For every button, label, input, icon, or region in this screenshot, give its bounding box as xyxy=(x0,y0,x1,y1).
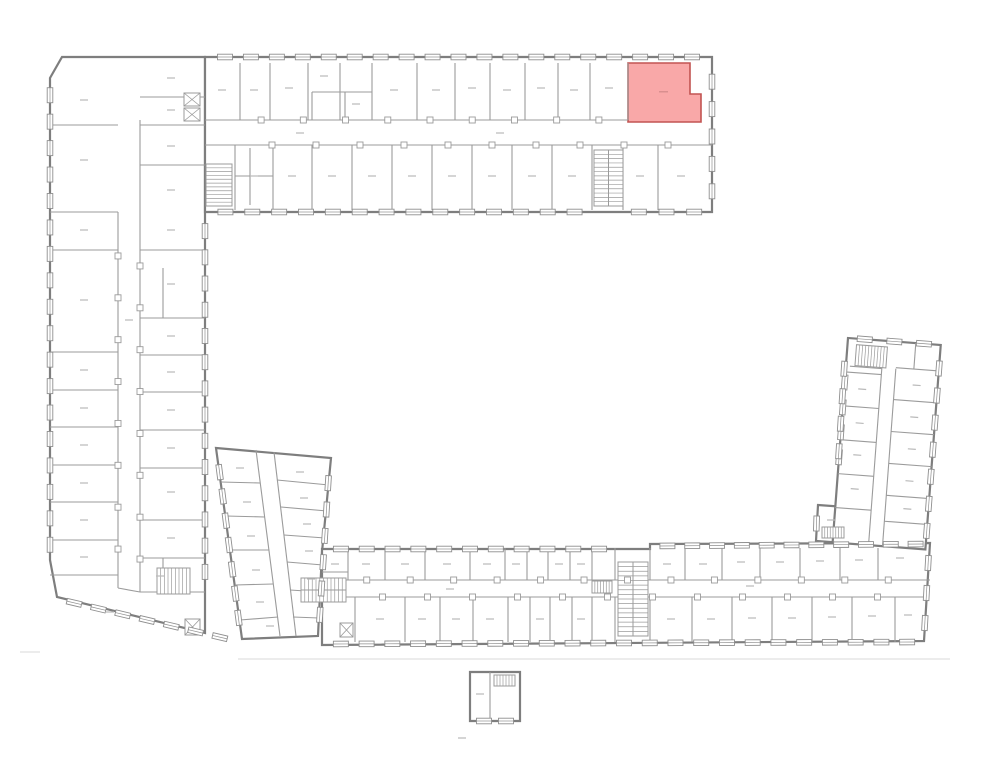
window-tick xyxy=(660,543,675,549)
window-tick xyxy=(710,543,725,549)
room-label-dash xyxy=(828,616,836,617)
window-tick xyxy=(631,209,646,215)
door-symbol xyxy=(115,462,121,468)
window-tick xyxy=(540,209,555,215)
room-label-dash xyxy=(528,175,536,176)
door-symbol xyxy=(830,594,836,600)
window-tick xyxy=(874,639,889,645)
room-label-dash xyxy=(503,89,511,90)
room-label-dash xyxy=(106,611,114,612)
door-symbol xyxy=(711,577,717,583)
window-tick xyxy=(565,640,580,646)
window-tick xyxy=(923,523,930,538)
room-label-dash xyxy=(250,89,258,90)
window-tick xyxy=(269,54,284,60)
window-tick xyxy=(592,546,607,552)
window-tick xyxy=(709,129,715,144)
room-label-dash xyxy=(331,563,339,564)
room-label-dash xyxy=(167,537,175,538)
window-tick xyxy=(936,361,943,376)
window-tick xyxy=(320,555,327,570)
door-symbol xyxy=(445,142,451,148)
window-tick xyxy=(385,641,400,647)
room-label-dash xyxy=(748,617,756,618)
window-tick xyxy=(837,416,844,431)
window-tick xyxy=(202,433,208,448)
room-label-dash xyxy=(636,175,644,176)
door-symbol xyxy=(115,546,121,552)
window-tick xyxy=(47,141,53,156)
room-label-dash xyxy=(80,159,88,160)
door-symbol xyxy=(137,472,143,478)
door-symbol xyxy=(137,556,143,562)
room-label-dash xyxy=(458,737,466,738)
window-tick xyxy=(321,54,336,60)
window-tick xyxy=(836,444,843,459)
door-symbol xyxy=(605,594,611,600)
door-symbol xyxy=(451,577,457,583)
room-label-dash xyxy=(376,618,384,619)
room-label-dash xyxy=(896,557,904,558)
window-tick xyxy=(822,639,837,645)
room-label-dash xyxy=(80,482,88,483)
room-label-dash xyxy=(452,618,460,619)
room-label-dash xyxy=(80,99,88,100)
window-tick xyxy=(685,543,700,549)
window-tick xyxy=(488,641,503,647)
window-tick xyxy=(784,542,799,548)
window-tick xyxy=(540,546,555,552)
window-tick xyxy=(841,361,848,376)
door-symbol xyxy=(427,117,433,123)
door-symbol xyxy=(650,594,656,600)
property-line xyxy=(20,652,950,659)
room-label-dash xyxy=(80,229,88,230)
room-label-dash xyxy=(432,89,440,90)
door-symbol xyxy=(343,117,349,123)
window-tick xyxy=(529,54,544,60)
door-symbol xyxy=(554,117,560,123)
room-label-dash xyxy=(167,229,175,230)
room-label-dash xyxy=(266,625,274,626)
window-tick xyxy=(685,54,700,60)
room-label-dash xyxy=(285,87,293,88)
window-tick xyxy=(642,640,657,646)
room-label-dash xyxy=(788,617,796,618)
door-symbol xyxy=(515,594,521,600)
door-symbol xyxy=(785,594,791,600)
door-symbol xyxy=(364,577,370,583)
window-tick xyxy=(406,209,421,215)
window-tick xyxy=(245,209,260,215)
room-label-dash xyxy=(555,563,563,564)
window-tick xyxy=(202,407,208,422)
room-label-dash xyxy=(570,89,578,90)
door-symbol xyxy=(115,379,121,385)
door-symbol xyxy=(137,514,143,520)
window-tick xyxy=(566,546,581,552)
door-symbol xyxy=(313,142,319,148)
window-tick xyxy=(514,641,529,647)
door-symbol xyxy=(137,430,143,436)
room-label-dash xyxy=(512,563,520,564)
highlighted-unit-label xyxy=(659,91,668,93)
door-symbol xyxy=(425,594,431,600)
stair-outline xyxy=(157,568,190,594)
room-label-dash xyxy=(167,109,175,110)
window-tick xyxy=(47,379,53,394)
window-tick xyxy=(694,640,709,646)
room-label-dash xyxy=(446,588,454,589)
room-label-dash xyxy=(125,319,133,320)
room-label-dash xyxy=(156,575,164,576)
room-label-dash xyxy=(568,175,576,176)
room-label-dash xyxy=(218,89,226,90)
window-tick xyxy=(436,641,451,647)
window-tick xyxy=(487,209,502,215)
window-tick xyxy=(745,640,760,646)
room-label-dash xyxy=(80,556,88,557)
window-tick xyxy=(322,528,329,543)
window-tick xyxy=(437,546,452,552)
window-tick xyxy=(202,564,208,579)
room-label-dash xyxy=(776,561,784,562)
window-tick xyxy=(848,639,863,645)
window-tick xyxy=(47,458,53,473)
window-tick xyxy=(318,581,325,596)
window-tick xyxy=(834,542,849,548)
room-label-dash xyxy=(328,175,336,176)
room-label-dash xyxy=(167,371,175,372)
door-symbol xyxy=(137,347,143,353)
room-label-dash xyxy=(288,175,296,176)
room-label-dash xyxy=(252,569,260,570)
room-label-dash xyxy=(303,523,311,524)
window-tick xyxy=(841,375,848,390)
window-tick xyxy=(932,415,939,430)
window-tick xyxy=(411,641,426,647)
door-symbol xyxy=(494,577,500,583)
room-label-dash xyxy=(80,444,88,445)
window-tick xyxy=(202,538,208,553)
window-tick xyxy=(451,54,466,60)
door-symbol xyxy=(137,305,143,311)
room-label-dash xyxy=(401,563,409,564)
window-tick xyxy=(433,209,448,215)
door-symbol xyxy=(469,117,475,123)
door-symbol xyxy=(385,117,391,123)
door-symbol xyxy=(885,577,891,583)
room-label-dash xyxy=(307,578,315,579)
room-label-dash xyxy=(390,89,398,90)
window-tick xyxy=(927,469,934,484)
room-label-dash xyxy=(904,614,912,615)
window-tick xyxy=(333,641,348,647)
window-tick xyxy=(47,88,53,103)
window-tick xyxy=(373,54,388,60)
door-symbol xyxy=(300,117,306,123)
door-symbol xyxy=(401,142,407,148)
room-label-dash xyxy=(418,618,426,619)
room-label-dash xyxy=(167,189,175,190)
door-symbol xyxy=(596,117,602,123)
door-symbol xyxy=(115,504,121,510)
door-symbol xyxy=(357,142,363,148)
door-symbol xyxy=(665,142,671,148)
room-label-dash xyxy=(577,563,585,564)
window-tick xyxy=(581,54,596,60)
window-tick xyxy=(477,718,492,724)
room-label-dash xyxy=(320,75,328,76)
floor-plan-page xyxy=(0,0,1000,777)
window-tick xyxy=(922,615,928,630)
room-label-dash xyxy=(167,283,175,284)
window-tick xyxy=(514,546,529,552)
door-symbol xyxy=(115,295,121,301)
door-symbol xyxy=(115,253,121,259)
window-tick xyxy=(202,250,208,265)
room-label-dash xyxy=(577,618,585,619)
door-symbol xyxy=(533,142,539,148)
window-tick xyxy=(202,381,208,396)
window-tick xyxy=(858,542,873,548)
room-label-dash xyxy=(300,497,308,498)
door-symbol xyxy=(842,577,848,583)
room-label-dash xyxy=(667,618,675,619)
window-tick xyxy=(202,460,208,475)
window-tick xyxy=(883,541,898,547)
room-label-dash xyxy=(305,550,313,551)
window-tick xyxy=(379,209,394,215)
window-tick xyxy=(47,537,53,552)
window-tick xyxy=(463,546,478,552)
highlighted-unit-layer xyxy=(628,63,701,122)
window-tick xyxy=(325,476,332,491)
room-label-dash xyxy=(80,369,88,370)
room-label-dash xyxy=(699,563,707,564)
window-tick xyxy=(659,54,674,60)
window-tick xyxy=(202,355,208,370)
room-label-dash xyxy=(247,535,255,536)
room-label-dash xyxy=(167,409,175,410)
room-label-dash xyxy=(296,471,304,472)
window-tick xyxy=(47,194,53,209)
stair-outline xyxy=(206,164,232,206)
room-label-dash xyxy=(167,77,175,78)
window-tick xyxy=(272,209,287,215)
window-tick xyxy=(47,273,53,288)
window-tick xyxy=(908,541,923,547)
window-tick xyxy=(887,338,902,345)
room-label-dash xyxy=(167,447,175,448)
window-tick xyxy=(460,209,475,215)
window-tick xyxy=(659,209,674,215)
door-symbol xyxy=(538,577,544,583)
room-label-dash xyxy=(368,175,376,176)
room-label-dash xyxy=(167,491,175,492)
window-tick xyxy=(47,220,53,235)
room-label-dash xyxy=(80,519,88,520)
window-tick xyxy=(668,640,683,646)
window-tick xyxy=(839,389,846,404)
window-tick xyxy=(857,336,872,343)
window-tick xyxy=(462,641,477,647)
window-tick xyxy=(202,328,208,343)
window-tick xyxy=(709,74,715,89)
window-tick xyxy=(513,209,528,215)
window-tick xyxy=(47,405,53,420)
window-tick xyxy=(217,54,232,60)
window-tick xyxy=(916,340,931,347)
window-tick xyxy=(734,543,749,549)
room-label-dash xyxy=(488,175,496,176)
window-tick xyxy=(488,546,503,552)
window-tick xyxy=(47,352,53,367)
room-label-dash xyxy=(855,559,863,560)
room-label-dash xyxy=(868,615,876,616)
window-tick xyxy=(359,546,374,552)
room-label-dash xyxy=(80,299,88,300)
window-tick xyxy=(359,641,374,647)
tilted-annex-outline xyxy=(216,448,331,639)
room-label-dash xyxy=(537,87,545,88)
window-tick xyxy=(607,54,622,60)
window-tick xyxy=(503,54,518,60)
door-symbol xyxy=(258,117,264,123)
floor-plan-svg xyxy=(0,0,1000,777)
window-tick xyxy=(813,516,819,531)
door-symbol xyxy=(668,577,674,583)
room-label-dash xyxy=(707,618,715,619)
window-tick xyxy=(425,54,440,60)
window-tick xyxy=(47,246,53,261)
window-tick xyxy=(771,640,786,646)
room-label-dash xyxy=(448,175,456,176)
window-tick xyxy=(499,718,514,724)
window-tick xyxy=(323,502,330,517)
door-symbol xyxy=(115,337,121,343)
room-label-dash xyxy=(250,175,258,176)
window-tick xyxy=(719,640,734,646)
window-tick xyxy=(202,486,208,501)
door-symbol xyxy=(577,142,583,148)
door-symbol xyxy=(115,420,121,426)
building-outlines xyxy=(50,57,944,721)
window-tick xyxy=(399,54,414,60)
door-symbol xyxy=(407,577,413,583)
room-label-dash xyxy=(816,560,824,561)
door-symbol xyxy=(560,594,566,600)
window-tick xyxy=(616,640,631,646)
door-symbol xyxy=(625,577,631,583)
window-tick xyxy=(809,542,824,548)
window-tick xyxy=(299,209,314,215)
window-tick xyxy=(325,209,340,215)
window-tick xyxy=(934,388,941,403)
window-tick xyxy=(900,639,915,645)
window-tick xyxy=(759,542,774,548)
window-tick xyxy=(555,54,570,60)
door-symbol xyxy=(470,594,476,600)
room-label-dash xyxy=(468,87,476,88)
door-symbol xyxy=(875,594,881,600)
room-label-dash xyxy=(443,563,451,564)
room-label-dash xyxy=(827,519,835,520)
door-symbol xyxy=(489,142,495,148)
door-symbol xyxy=(380,594,386,600)
window-tick xyxy=(295,54,310,60)
door-symbol xyxy=(740,594,746,600)
room-label-dash xyxy=(352,103,360,104)
left-wing-outline xyxy=(50,57,205,633)
room-label-dash xyxy=(737,561,745,562)
window-tick xyxy=(925,496,932,511)
room-label-dash xyxy=(483,563,491,564)
window-tick xyxy=(687,209,702,215)
window-tick xyxy=(243,54,258,60)
door-symbol xyxy=(695,594,701,600)
room-label-dash xyxy=(486,618,494,619)
room-label-dash xyxy=(296,132,304,133)
window-tick xyxy=(47,299,53,314)
door-symbol xyxy=(137,263,143,269)
room-label-dash xyxy=(677,175,685,176)
room-label-dash xyxy=(80,407,88,408)
room-label-dash xyxy=(746,585,754,586)
window-tick xyxy=(930,442,937,457)
window-tick xyxy=(47,326,53,341)
window-tick xyxy=(477,54,492,60)
window-tick xyxy=(633,54,648,60)
door-symbol xyxy=(798,577,804,583)
room-label-dash xyxy=(496,132,504,133)
window-tick xyxy=(567,209,582,215)
window-tick xyxy=(202,276,208,291)
window-tick xyxy=(797,640,812,646)
window-tick xyxy=(212,633,228,642)
room-label-dash xyxy=(243,501,251,502)
window-tick xyxy=(709,102,715,117)
room-label-dash xyxy=(167,335,175,336)
window-tick xyxy=(709,184,715,199)
window-tick xyxy=(539,640,554,646)
room-label-dash xyxy=(605,87,613,88)
room-label-dash xyxy=(408,175,416,176)
door-symbol xyxy=(581,577,587,583)
door-symbol xyxy=(137,389,143,395)
room-label-dash xyxy=(476,693,484,694)
door-symbol xyxy=(511,117,517,123)
window-tick xyxy=(925,555,931,570)
window-tick xyxy=(47,511,53,526)
room-label-dash xyxy=(536,618,544,619)
room-label-dash xyxy=(663,563,671,564)
window-tick xyxy=(202,224,208,239)
window-tick xyxy=(317,607,324,622)
window-tick xyxy=(591,640,606,646)
window-tick xyxy=(218,209,233,215)
window-tick xyxy=(47,167,53,182)
room-label-dash xyxy=(236,467,244,468)
room-label-dash xyxy=(256,601,264,602)
window-tick xyxy=(923,585,929,600)
window-tick xyxy=(709,156,715,171)
window-tick xyxy=(385,546,400,552)
room-label-dash xyxy=(167,145,175,146)
window-tick xyxy=(347,54,362,60)
window-tick xyxy=(47,432,53,447)
window-tick xyxy=(47,484,53,499)
